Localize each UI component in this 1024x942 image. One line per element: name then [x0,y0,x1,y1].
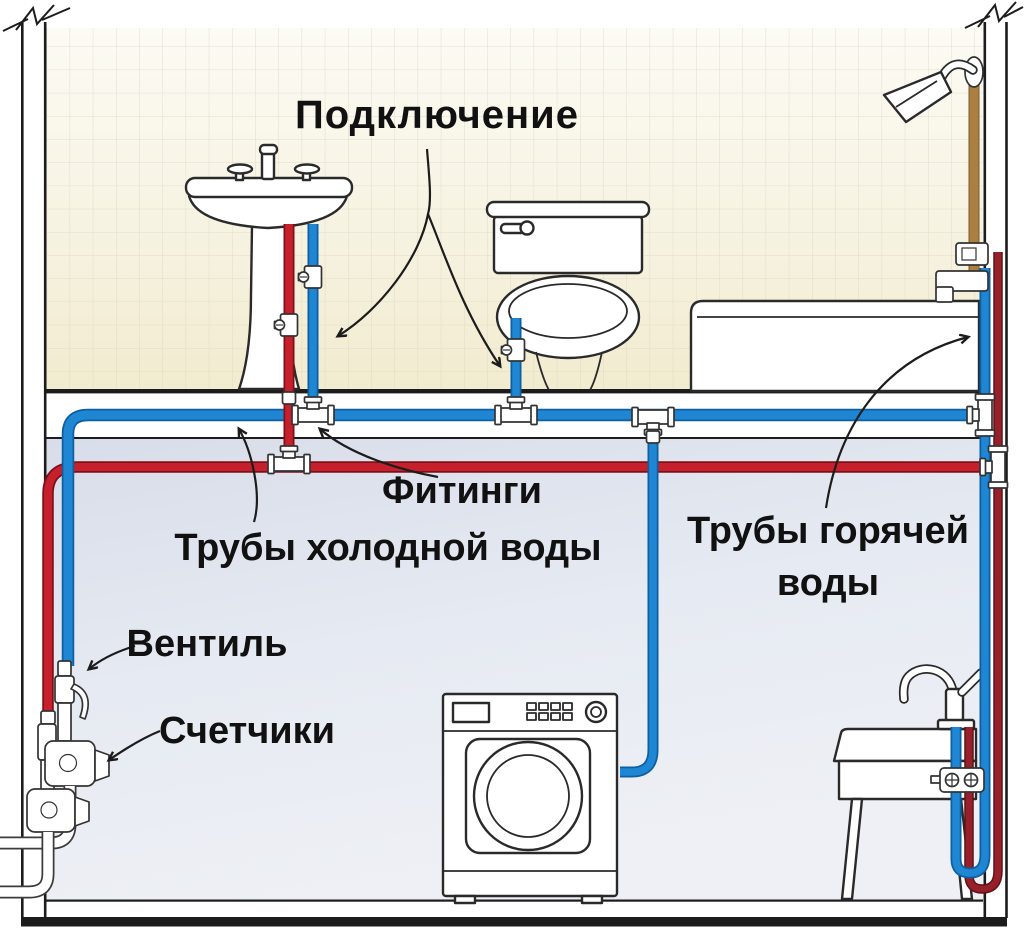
washer-dial [586,702,606,722]
tub-spout-lip [936,287,953,302]
toilet-flush-knob [521,222,534,235]
bathtub [691,301,979,391]
basement-ceiling-line [47,437,984,439]
left-wall-break-icon [3,5,70,31]
label-valve: Вентиль [127,623,288,665]
diagram-canvas: Подключение Фитинги Трубы холодной воды … [0,0,1024,942]
sink-faucet-spout [260,145,277,154]
foundation-slab [21,917,1007,927]
washer-foot-left [455,896,475,903]
sink-handle-left [228,165,252,174]
sink-faucet-body [262,152,274,179]
label-connection: Подключение [295,93,579,137]
washer-door [474,742,582,850]
hot-water-meter [27,789,75,832]
cold-water-meter [45,741,95,786]
sink-handle-right [295,165,319,174]
label-hot-pipes-line1: Трубы горячей [687,510,969,552]
label-meters: Счетчики [159,710,335,752]
label-cold-pipes: Трубы холодной воды [174,527,601,569]
sink-deck [186,178,352,197]
label-hot-pipes-line2: воды [777,562,879,604]
right-wall-break-icon [965,2,1023,28]
ceiling-collar-washer [647,431,660,443]
washer-foot-right [582,896,602,903]
washing-machine [443,694,617,903]
washer-display [453,703,489,722]
floor-collar-sink-hot [283,392,296,404]
tub-diverter [956,243,988,265]
plumbing-diagram: Подключение Фитинги Трубы холодной воды … [0,0,1024,942]
toilet-tank-lid [487,202,649,217]
bathtub-apron [691,301,979,391]
shower-riser-pipe [969,60,979,272]
label-fittings: Фитинги [382,470,542,512]
